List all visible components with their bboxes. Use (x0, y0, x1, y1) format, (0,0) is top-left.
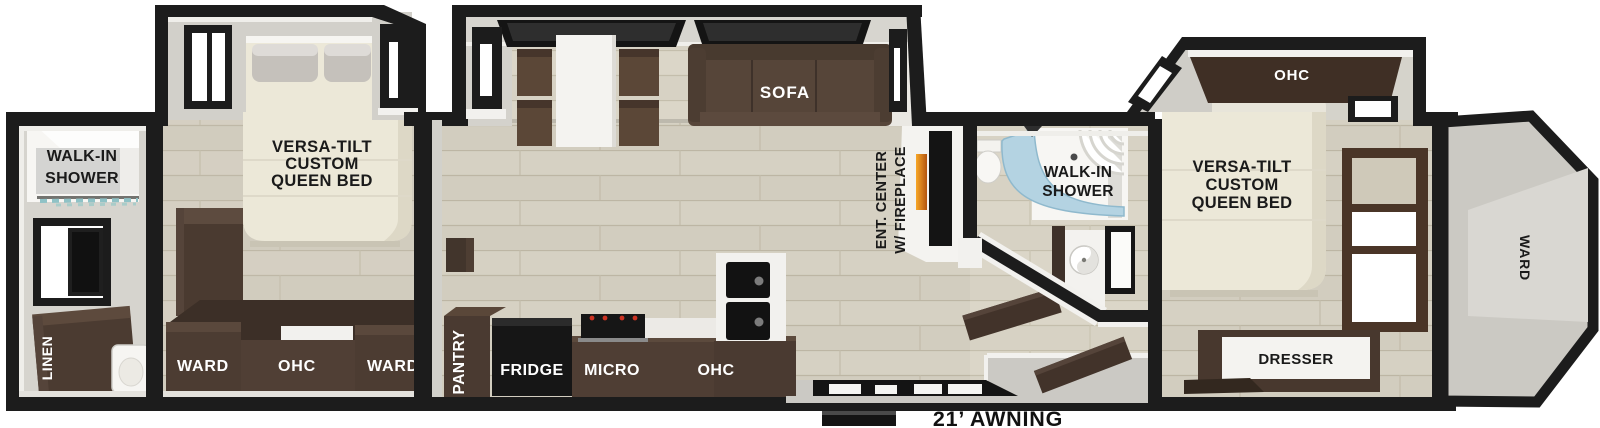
svg-text:FRIDGE: FRIDGE (500, 362, 563, 379)
svg-text:W/ FIREPLACE: W/ FIREPLACE (893, 146, 909, 254)
svg-text:WARD: WARD (367, 358, 419, 375)
svg-text:WARD: WARD (177, 358, 229, 375)
svg-text:WARD: WARD (1517, 235, 1533, 281)
svg-text:VERSA-TILT: VERSA-TILT (1193, 158, 1292, 176)
svg-text:QUEEN BED: QUEEN BED (271, 172, 373, 190)
svg-text:SHOWER: SHOWER (45, 170, 119, 187)
svg-text:OHC: OHC (1274, 67, 1310, 84)
svg-text:LINEN: LINEN (39, 336, 55, 381)
svg-text:ENT. CENTER: ENT. CENTER (874, 151, 890, 250)
svg-text:SHOWER: SHOWER (1042, 183, 1114, 200)
svg-text:CUSTOM: CUSTOM (1206, 176, 1279, 194)
svg-text:CUSTOM: CUSTOM (285, 155, 359, 173)
svg-text:OHC: OHC (697, 362, 734, 379)
svg-text:21’ AWNING: 21’ AWNING (933, 407, 1063, 428)
svg-text:PANTRY: PANTRY (451, 329, 468, 394)
svg-text:VERSA-TILT: VERSA-TILT (272, 138, 372, 156)
svg-text:SOFA: SOFA (760, 83, 810, 102)
svg-text:WALK-IN: WALK-IN (1044, 164, 1112, 181)
svg-text:OHC: OHC (278, 358, 316, 375)
svg-text:WALK-IN: WALK-IN (47, 148, 118, 165)
svg-text:QUEEN BED: QUEEN BED (1192, 194, 1293, 212)
svg-text:DRESSER: DRESSER (1258, 351, 1333, 368)
svg-text:MICRO: MICRO (584, 362, 640, 379)
